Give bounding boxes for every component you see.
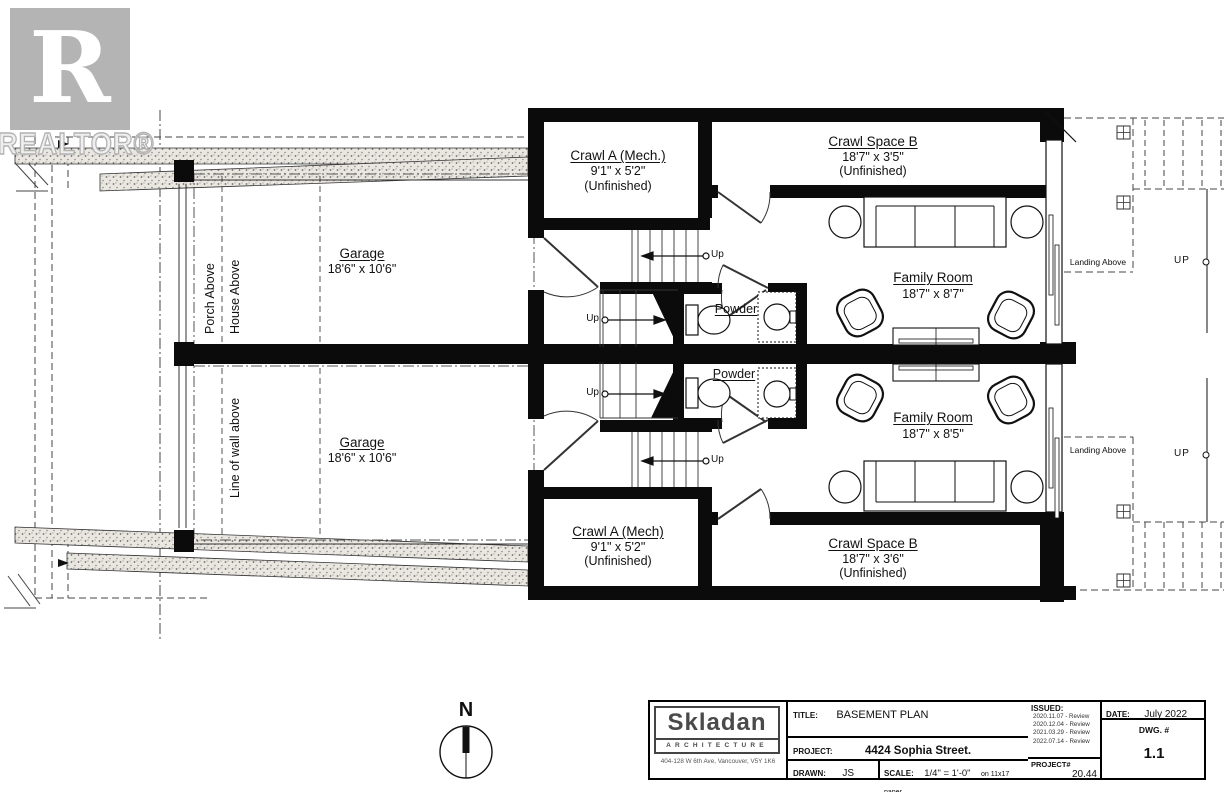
label-garage-bottom: Garage (312, 435, 412, 450)
column-post (1117, 505, 1130, 518)
project-name: 4424 Sophia Street. (865, 745, 971, 757)
title-block: Skladan ARCHITECTURE 404-128 W 6th Ave, … (648, 700, 1206, 780)
dims-garage-bottom: 18'6" x 10'6" (302, 451, 422, 465)
label-family-room-bottom: Family Room (873, 410, 993, 425)
label-up-3: Up (575, 387, 599, 398)
label-up-4: Up (711, 454, 724, 465)
project-number-cell: PROJECT# 20.44 (1028, 757, 1102, 778)
label-up-1: Up (711, 249, 724, 260)
project-cell: PROJECT: 4424 Sophia Street. (788, 738, 1028, 759)
north-label: N (452, 699, 480, 722)
firm-tagline: ARCHITECTURE (656, 738, 778, 749)
label-crawl-b-top: Crawl Space B (813, 134, 933, 149)
status-crawl-a-top: (Unfinished) (558, 179, 678, 193)
basement-plan-sheet: R REALTOR® Porch Above House Above Line … (0, 0, 1224, 792)
scale-cell: SCALE: 1/4" = 1'-0" on 11x17 paper (878, 759, 1028, 778)
label-up-2: Up (575, 313, 599, 324)
dims-family-room-bottom: 18'7" x 8'5" (873, 427, 993, 441)
label-family-room-top: Family Room (873, 270, 993, 285)
issued-entry: 2022.07.14 - Review (1031, 738, 1097, 746)
drawing-title: BASEMENT PLAN (836, 709, 928, 721)
dims-garage-top: 18'6" x 10'6" (302, 262, 422, 276)
exterior-stairs-top (1064, 118, 1224, 333)
label-powder-top: Powder (706, 302, 766, 316)
powder-top-fixtures (686, 292, 796, 342)
issued-entry: 2021.03.29 - Review (1031, 729, 1097, 737)
label-up-exterior-top: UP (1174, 255, 1190, 266)
realtor-r-logo: R (29, 20, 110, 118)
label-crawl-b-bottom: Crawl Space B (813, 536, 933, 551)
column-post (1117, 196, 1130, 209)
project-label: PROJECT: (793, 747, 833, 756)
direction-arrows (58, 140, 69, 567)
issued-entry: 2020.12.04 - Review (1031, 721, 1097, 729)
project-number: 20.44 (1031, 769, 1097, 780)
label-crawl-a-bottom: Crawl A (Mech) (558, 524, 678, 539)
label-porch-above: Porch Above (203, 263, 217, 334)
label-landing-above-bottom: Landing Above (1062, 445, 1134, 455)
label-garage-top: Garage (312, 246, 412, 261)
exterior-stairs-bottom (1064, 378, 1224, 590)
title-label: TITLE: (793, 711, 818, 720)
dwg-cell: DWG. # 1.1 (1102, 720, 1206, 778)
status-crawl-b-bottom: (Unfinished) (813, 566, 933, 580)
status-crawl-a-bottom: (Unfinished) (558, 554, 678, 568)
title-cell: TITLE: BASEMENT PLAN (788, 702, 1028, 738)
firm-name: Skladan (656, 708, 778, 738)
north-arrow (440, 726, 492, 778)
floor-plan-linework (0, 0, 1224, 792)
firm-address: 404-128 W 6th Ave, Vancouver, V5Y 1K6 (652, 758, 784, 765)
dims-crawl-a-bottom: 9'1" x 5'2" (558, 540, 678, 554)
realtor-watermark: R (10, 8, 130, 130)
window-walls (1046, 140, 1062, 518)
scale-value: 1/4" = 1'-0" (924, 768, 970, 779)
label-powder-bottom: Powder (704, 367, 764, 381)
driveway-ramps (15, 148, 528, 586)
date-value: July 2022 (1144, 709, 1187, 720)
issued-entry: 2020.11.07 - Review (1031, 713, 1097, 721)
firm-logo: Skladan ARCHITECTURE (654, 706, 780, 754)
drawn-label: DRAWN: (793, 769, 826, 778)
realtor-wordmark: REALTOR® (0, 126, 142, 162)
date-label: DATE: (1106, 710, 1130, 719)
column-post (1117, 574, 1130, 587)
dwg-label: DWG. # (1102, 725, 1206, 735)
scale-label: SCALE: (884, 769, 914, 778)
dims-crawl-b-top: 18'7" x 3'5" (813, 150, 933, 164)
label-up-exterior-bottom: UP (1174, 448, 1190, 459)
dims-family-room-top: 18'7" x 8'7" (873, 287, 993, 301)
label-house-above: House Above (228, 260, 242, 334)
issued-label: ISSUED: (1031, 704, 1097, 713)
label-crawl-a-top: Crawl A (Mech.) (558, 148, 678, 163)
dwg-number: 1.1 (1102, 745, 1206, 762)
dims-crawl-b-bottom: 18'7" x 3'6" (813, 552, 933, 566)
firm-logo-cell: Skladan ARCHITECTURE 404-128 W 6th Ave, … (650, 702, 788, 778)
issued-cell: ISSUED: 2020.11.07 - Review 2020.12.04 -… (1028, 702, 1102, 757)
label-line-of-wall-above: Line of wall above (228, 398, 242, 498)
status-crawl-b-top: (Unfinished) (813, 164, 933, 178)
drawn-by: JS (842, 768, 854, 779)
dims-crawl-a-top: 9'1" x 5'2" (558, 164, 678, 178)
column-post (1117, 126, 1130, 139)
drawn-cell: DRAWN: JS (788, 759, 878, 778)
date-cell: DATE: July 2022 (1102, 702, 1206, 720)
label-landing-above-top: Landing Above (1062, 257, 1134, 267)
project-number-label: PROJECT# (1031, 760, 1097, 769)
